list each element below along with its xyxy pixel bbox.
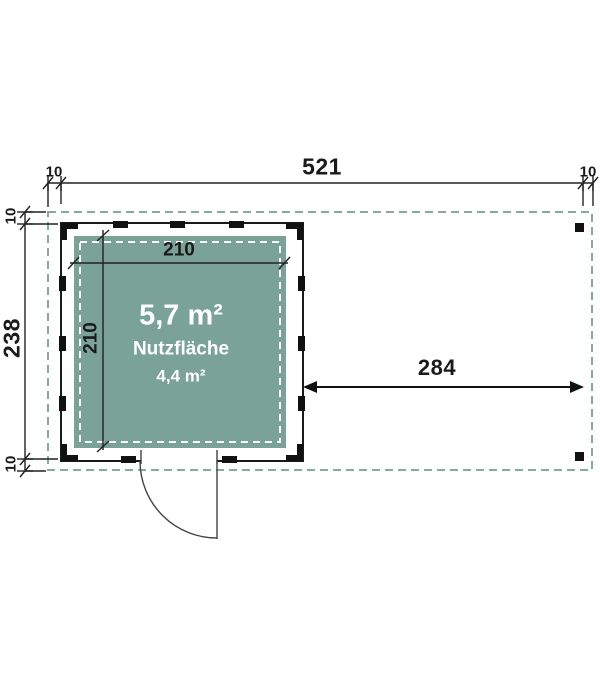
door-swing-arc	[140, 461, 217, 538]
dim-label-interior-width: 210	[163, 241, 195, 260]
dim-label-canopy-width: 284	[418, 357, 456, 379]
dim-label-overhang-top-left: 10	[46, 165, 63, 180]
dimension-line-top	[43, 176, 598, 207]
dim-label-interior-depth: 210	[82, 322, 101, 354]
roof-post-top-right	[575, 223, 584, 232]
dim-label-overhang-left-bottom: 10	[4, 456, 19, 473]
dim-label-total-depth: 238	[1, 318, 24, 358]
room-gross-area-label: 5,7 m²	[139, 302, 223, 331]
door-opening	[141, 456, 217, 464]
dim-label-overhang-left-top: 10	[4, 208, 19, 225]
roof-post-bottom-right	[575, 452, 584, 461]
canopy-dimension-arrow	[303, 381, 584, 393]
dim-label-total-width: 521	[302, 156, 342, 179]
room-usable-area-label: 4,4 m²	[156, 368, 205, 385]
floor-plan: 10 521 10 10 238 10 210 210 284 5,7 m² N…	[0, 0, 600, 700]
dim-label-overhang-top-right: 10	[580, 165, 597, 180]
room-usable-label: Nutzfläche	[133, 340, 229, 359]
